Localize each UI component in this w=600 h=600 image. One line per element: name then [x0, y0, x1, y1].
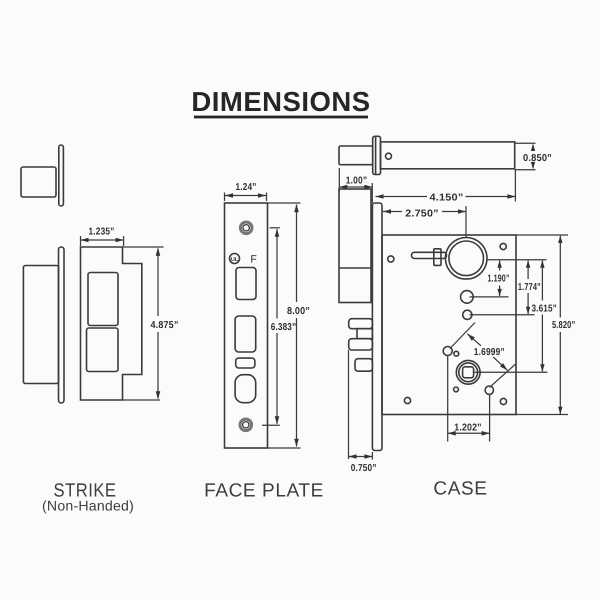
- svg-text:3.615”: 3.615”: [531, 303, 557, 314]
- svg-text:1.202”: 1.202”: [454, 422, 482, 433]
- svg-text:DIMENSIONS: DIMENSIONS: [191, 86, 370, 117]
- svg-text:0.850”: 0.850”: [523, 153, 552, 164]
- svg-text:1.24”: 1.24”: [236, 182, 257, 193]
- svg-text:2.750”: 2.750”: [405, 209, 439, 220]
- svg-text:4.875”: 4.875”: [151, 320, 179, 331]
- svg-text:1.190”: 1.190”: [488, 274, 510, 285]
- svg-text:1.6999”: 1.6999”: [474, 347, 505, 358]
- svg-text:UL: UL: [231, 257, 239, 263]
- svg-text:(Non-Handed): (Non-Handed): [42, 498, 134, 514]
- svg-text:6.383”: 6.383”: [271, 322, 297, 333]
- svg-text:FACE PLATE: FACE PLATE: [204, 481, 324, 502]
- svg-text:8.00”: 8.00”: [287, 306, 310, 317]
- svg-text:4.150”: 4.150”: [430, 193, 464, 204]
- svg-text:0.750”: 0.750”: [351, 463, 377, 474]
- svg-text:1.774”: 1.774”: [518, 282, 541, 293]
- svg-text:CASE: CASE: [433, 479, 487, 500]
- svg-text:1.235”: 1.235”: [89, 227, 115, 238]
- svg-text:5.820”: 5.820”: [552, 320, 576, 331]
- svg-text:1.00”: 1.00”: [346, 175, 368, 186]
- svg-text:F: F: [250, 253, 256, 265]
